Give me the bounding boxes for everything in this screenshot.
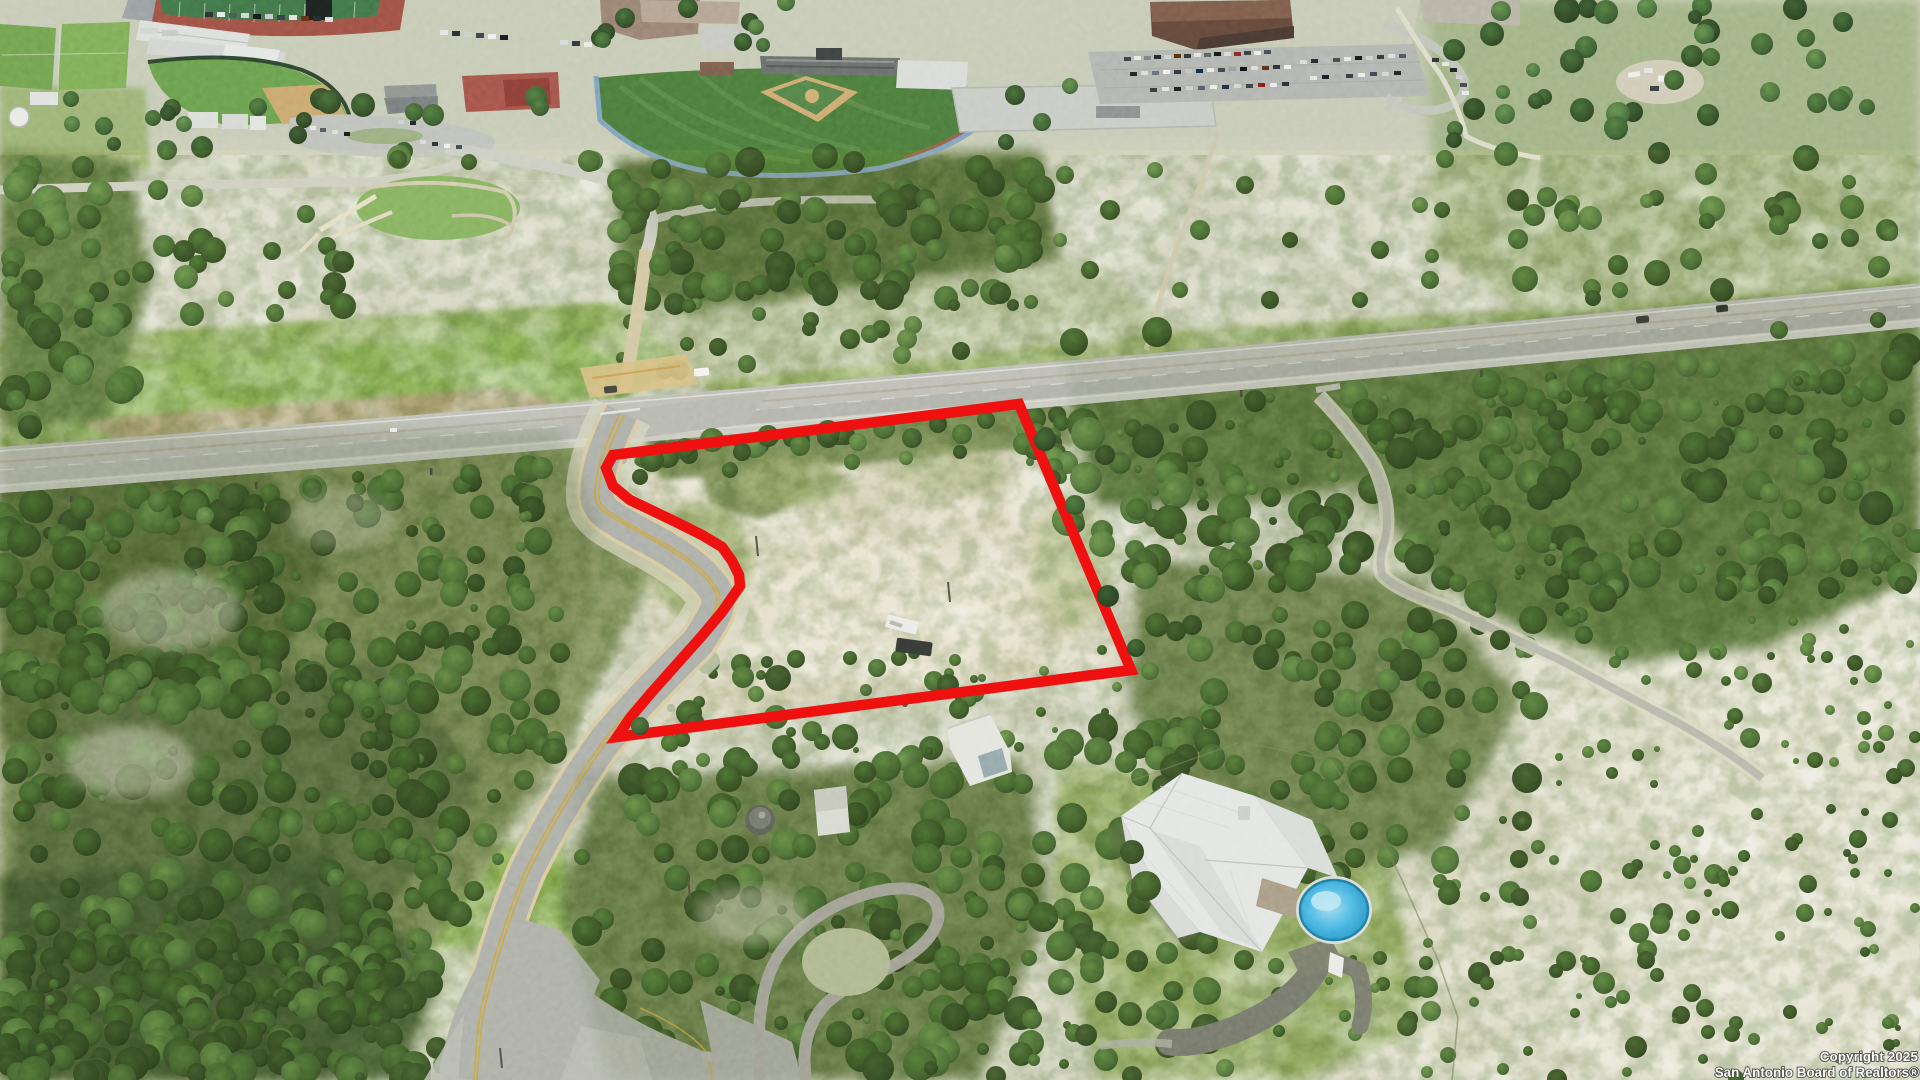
svg-text:Copyright 2025: Copyright 2025 [1820,1049,1918,1064]
svg-text:San Antonio Board of Realtors®: San Antonio Board of Realtors® [1715,1065,1919,1080]
